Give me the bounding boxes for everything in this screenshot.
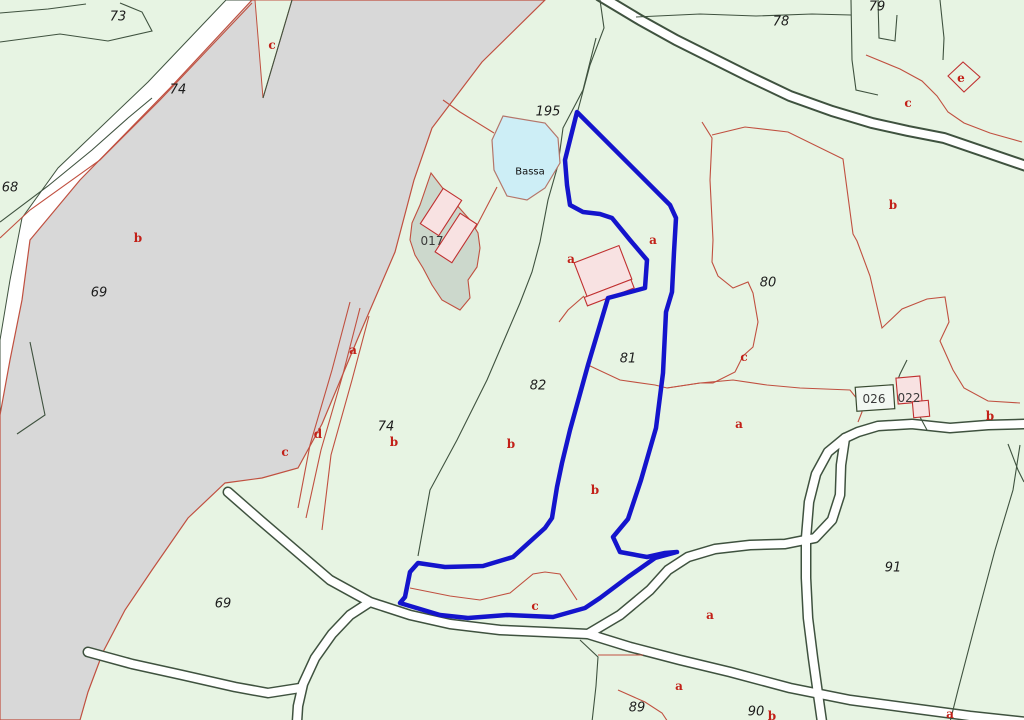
- label-letter-c: c: [268, 38, 275, 52]
- label-number-69: 69: [91, 286, 108, 301]
- label-letter-b: b: [591, 483, 599, 497]
- label-number-74: 74: [170, 83, 187, 98]
- label-number-80: 80: [760, 276, 777, 291]
- label-number-89: 89: [629, 701, 646, 716]
- label-letter-c: c: [740, 350, 747, 364]
- label-letter-b: b: [507, 437, 515, 451]
- label-letter-a: a: [735, 417, 743, 431]
- label-number-78: 78: [773, 15, 790, 30]
- label-letter-e: e: [957, 71, 965, 85]
- label-number-68: 68: [2, 181, 19, 196]
- cadastral-map-viewport[interactable]: 7374686919578798081827469918990cbecbaaad…: [0, 0, 1024, 720]
- label-number-195: 195: [536, 105, 561, 120]
- label-letter-b: b: [768, 709, 776, 720]
- label-number-82: 82: [530, 379, 547, 394]
- label-letter-b: b: [986, 409, 994, 423]
- label-letter-a: a: [649, 233, 657, 247]
- label-letter-a: a: [706, 608, 714, 622]
- label-number-90: 90: [748, 705, 765, 720]
- label-letter-a: a: [349, 343, 357, 357]
- label-letter-a: a: [675, 679, 683, 693]
- label-letter-b: b: [134, 231, 142, 245]
- label-letter-a: a: [946, 707, 954, 720]
- label-number-73: 73: [110, 10, 127, 25]
- label-building-026: 026: [863, 392, 886, 406]
- label-number-74: 74: [378, 420, 395, 435]
- label-letter-a: a: [567, 252, 575, 266]
- label-building-022: 022: [898, 391, 921, 405]
- label-number-81: 81: [620, 352, 637, 367]
- label-letter-c: c: [904, 96, 911, 110]
- label-letter-b: b: [889, 198, 897, 212]
- label-letter-c: c: [531, 599, 538, 613]
- cadastral-map-canvas[interactable]: 7374686919578798081827469918990cbecbaaad…: [0, 0, 1024, 720]
- label-letter-c: c: [281, 445, 288, 459]
- label-building-017: 017: [421, 234, 444, 248]
- label-water-Bassa: Bassa: [515, 167, 545, 178]
- label-letter-d: d: [314, 427, 323, 441]
- label-number-91: 91: [885, 561, 902, 576]
- label-letter-b: b: [390, 435, 398, 449]
- label-number-69: 69: [215, 597, 232, 612]
- label-number-79: 79: [869, 0, 886, 15]
